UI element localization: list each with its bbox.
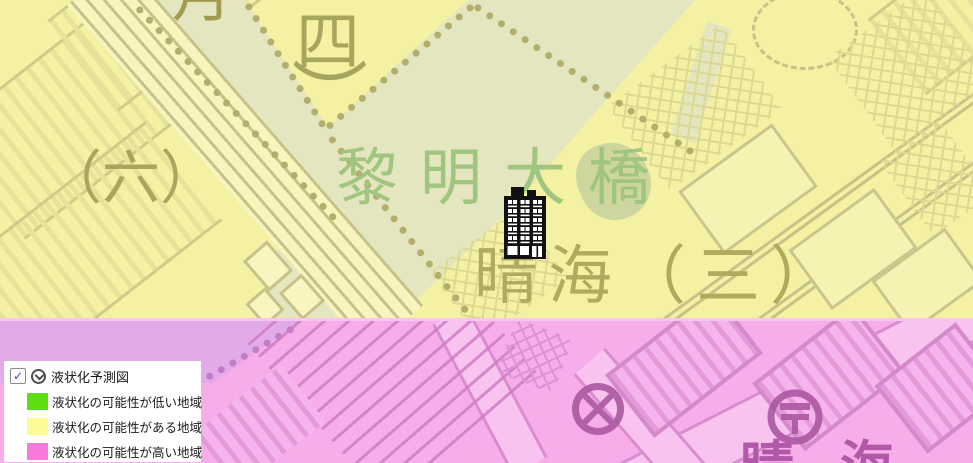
legend-item-label: 液状化の可能性が高い地域 — [52, 442, 202, 461]
swatch-low — [27, 393, 48, 410]
legend-item-high: 液状化の可能性が高い地域 — [27, 442, 201, 461]
zone-liquefaction-possible[interactable]: 月 四 ） （六） 黎明大橋 晴海（三） — [0, 0, 973, 318]
building-marker[interactable] — [504, 187, 546, 259]
legend-item-label: 液状化の可能性が低い地域 — [52, 392, 202, 411]
map-label-district-six: （六） — [44, 150, 218, 208]
legend-items: 液状化の可能性が低い地域 液状化の可能性がある地域 液状化の可能性が高い地域 — [27, 392, 201, 461]
swatch-high — [27, 443, 48, 460]
map-label-vertical-paren: ） — [289, 57, 363, 133]
checkmark-icon: ✓ — [13, 370, 23, 382]
map-viewport[interactable]: 月 四 ） （六） 黎明大橋 晴海（三） 晴海 — [0, 0, 973, 463]
map-label-harumi-partial: 晴海 — [740, 440, 940, 463]
legend-header: ✓ 液状化予測図 — [4, 361, 201, 386]
legend-panel: ✓ 液状化予測図 液状化の可能性が低い地域 液状化の可能性がある地域 液状化の可… — [4, 361, 201, 462]
legend-item-possible: 液状化の可能性がある地域 — [27, 417, 201, 436]
legend-item-label: 液状化の可能性がある地域 — [52, 417, 202, 436]
police-station-icon — [570, 381, 626, 437]
legend-item-low: 液状化の可能性が低い地域 — [27, 392, 201, 411]
layer-checkbox[interactable]: ✓ — [10, 368, 26, 384]
swatch-possible — [27, 418, 48, 435]
chevron-down-circle-icon[interactable] — [31, 369, 46, 384]
legend-title: 液状化予測図 — [51, 367, 129, 386]
map-label-fragment: 月 — [172, 0, 232, 26]
